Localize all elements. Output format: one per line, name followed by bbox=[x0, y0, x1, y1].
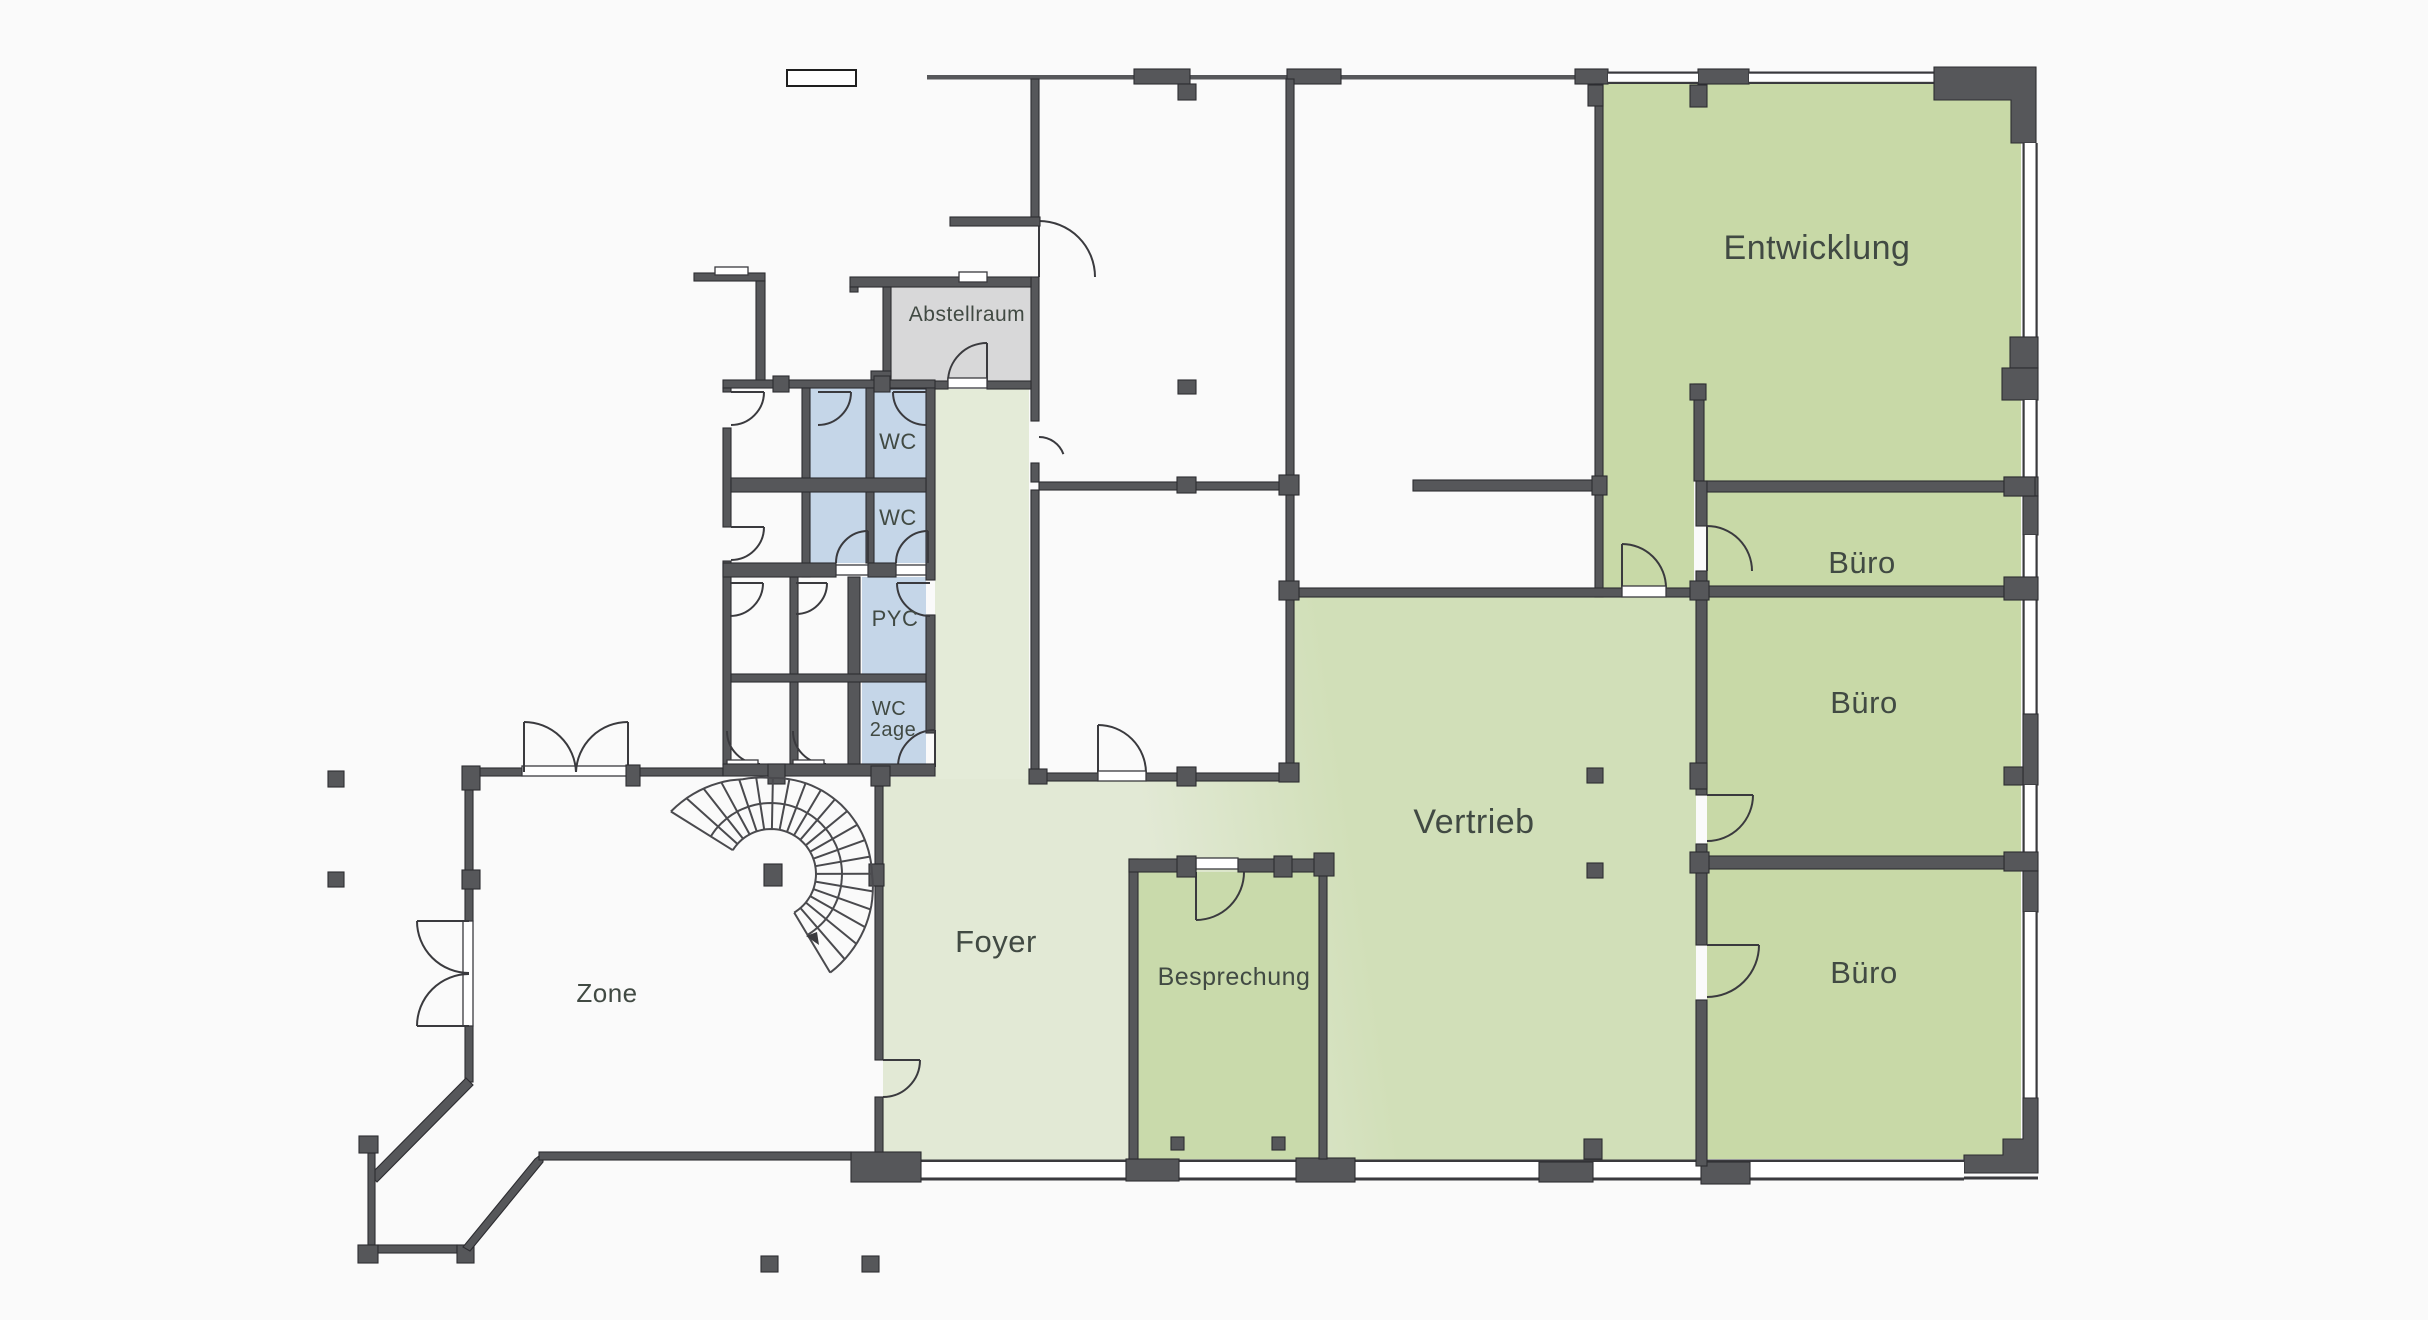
svg-text:PYC: PYC bbox=[872, 606, 919, 631]
svg-text:Vertrieb: Vertrieb bbox=[1413, 803, 1534, 841]
svg-text:Büro: Büro bbox=[1828, 545, 1895, 580]
svg-text:Besprechung: Besprechung bbox=[1158, 963, 1311, 991]
svg-text:Abstellraum: Abstellraum bbox=[909, 303, 1025, 326]
svg-text:2age: 2age bbox=[870, 719, 917, 741]
svg-text:Büro: Büro bbox=[1830, 955, 1897, 990]
svg-text:WC: WC bbox=[879, 505, 917, 530]
svg-text:Entwicklung: Entwicklung bbox=[1724, 229, 1911, 267]
svg-text:WC: WC bbox=[872, 698, 906, 720]
svg-text:Büro: Büro bbox=[1830, 685, 1897, 720]
svg-text:Zone: Zone bbox=[576, 978, 637, 1008]
svg-text:WC: WC bbox=[879, 429, 917, 454]
svg-text:Foyer: Foyer bbox=[955, 924, 1037, 959]
